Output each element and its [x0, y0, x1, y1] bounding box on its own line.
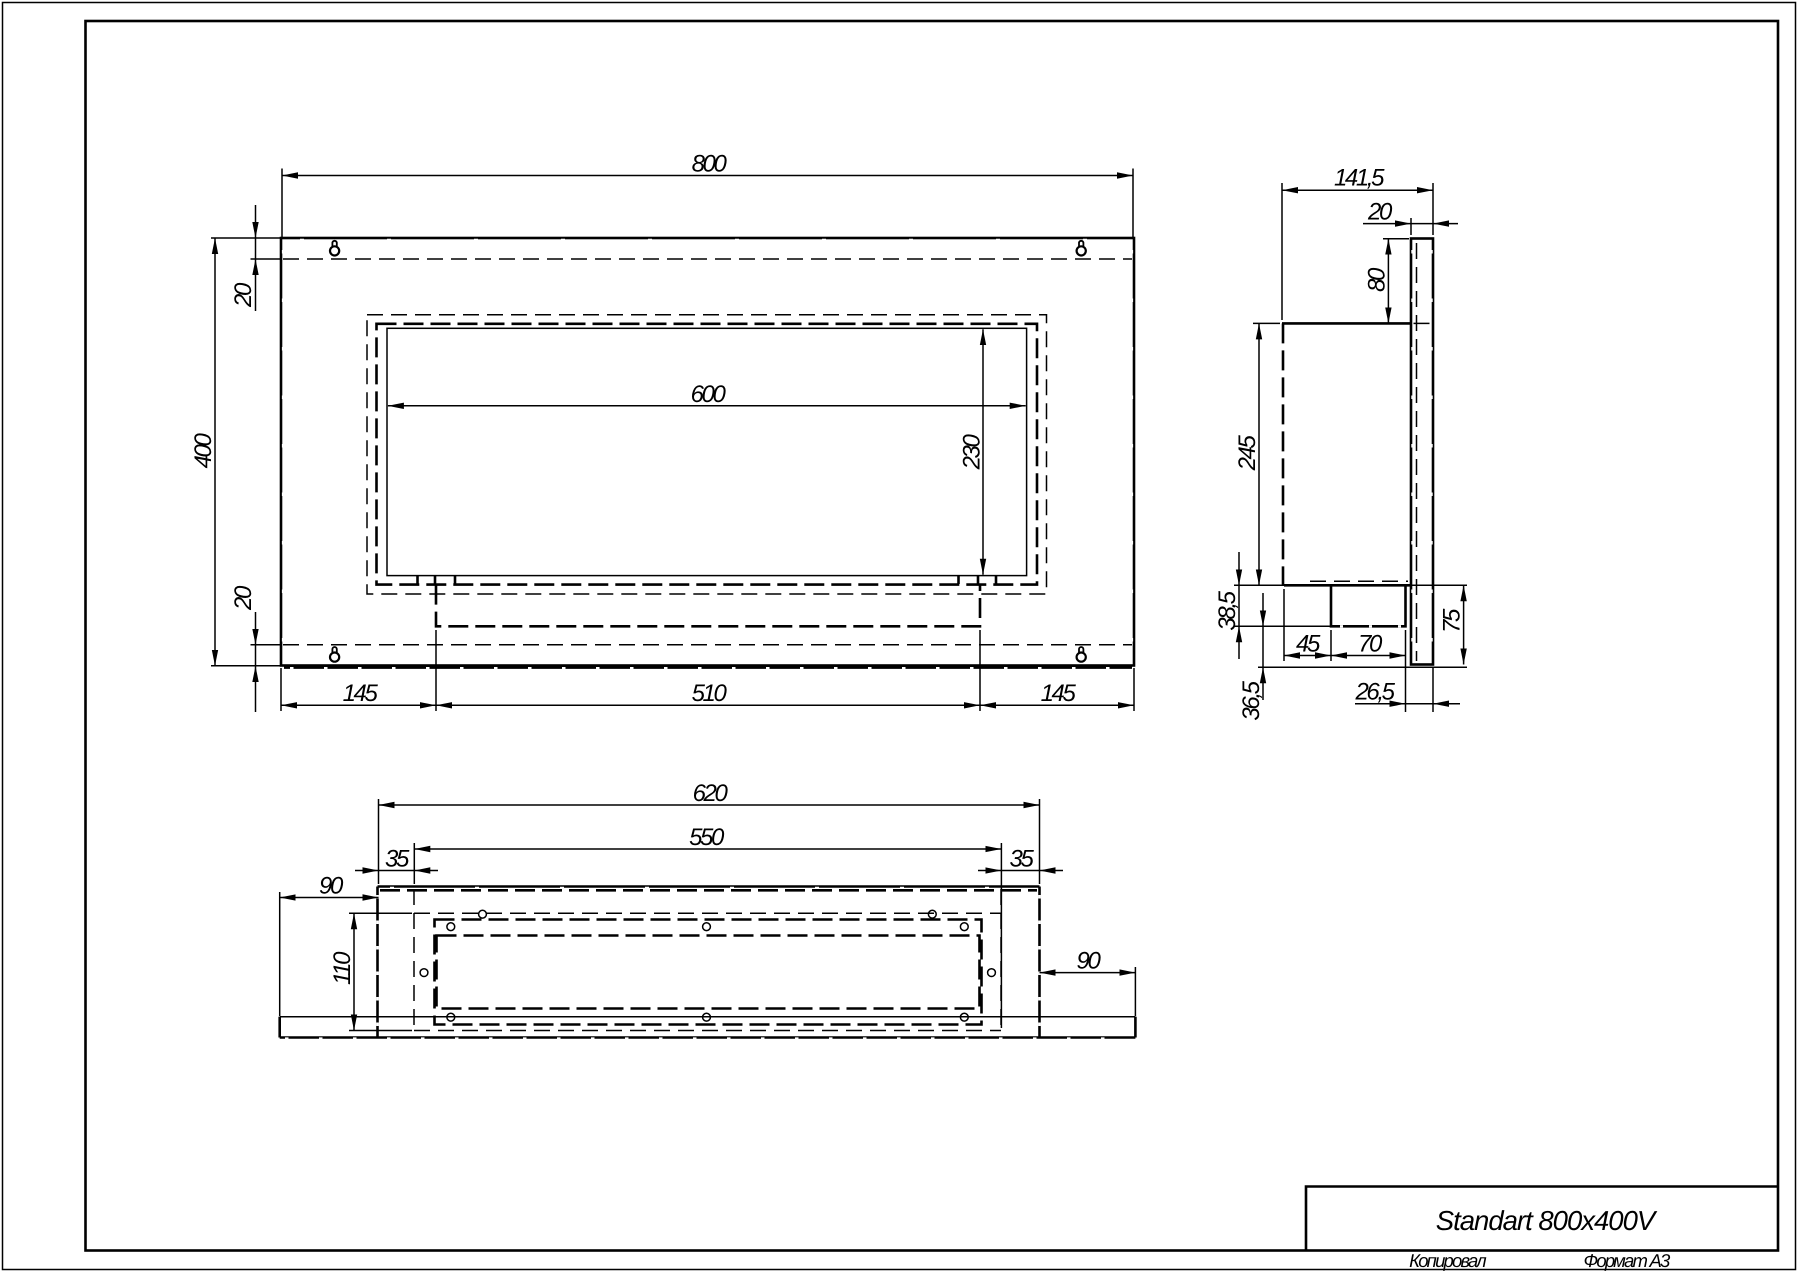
- svg-text:145: 145: [1041, 680, 1077, 707]
- svg-text:600: 600: [691, 381, 727, 408]
- svg-text:70: 70: [1358, 631, 1383, 658]
- svg-text:80: 80: [1363, 267, 1390, 292]
- svg-text:75: 75: [1439, 608, 1466, 633]
- svg-text:145: 145: [343, 680, 379, 707]
- svg-text:90: 90: [1077, 948, 1102, 975]
- svg-text:45: 45: [1296, 631, 1321, 658]
- svg-text:35: 35: [1010, 846, 1035, 873]
- svg-text:550: 550: [689, 824, 725, 851]
- svg-text:20: 20: [1367, 199, 1393, 226]
- svg-text:Формат А3: Формат А3: [1583, 1250, 1671, 1271]
- svg-text:110: 110: [329, 951, 356, 985]
- svg-text:38,5: 38,5: [1214, 590, 1241, 630]
- svg-text:36,5: 36,5: [1238, 680, 1265, 720]
- svg-text:230: 230: [958, 434, 985, 471]
- svg-text:20: 20: [230, 585, 257, 611]
- svg-text:26,5: 26,5: [1354, 679, 1395, 706]
- svg-text:141,5: 141,5: [1334, 165, 1385, 192]
- svg-text:35: 35: [385, 846, 410, 873]
- svg-text:510: 510: [692, 680, 728, 707]
- svg-text:400: 400: [190, 433, 217, 469]
- svg-text:245: 245: [1234, 435, 1261, 472]
- svg-text:620: 620: [693, 780, 729, 807]
- svg-text:800: 800: [692, 151, 728, 178]
- svg-text:90: 90: [319, 873, 344, 900]
- svg-text:20: 20: [230, 282, 257, 308]
- svg-text:Копировал: Копировал: [1409, 1250, 1487, 1271]
- svg-text:Standart 800x400V: Standart 800x400V: [1436, 1205, 1658, 1236]
